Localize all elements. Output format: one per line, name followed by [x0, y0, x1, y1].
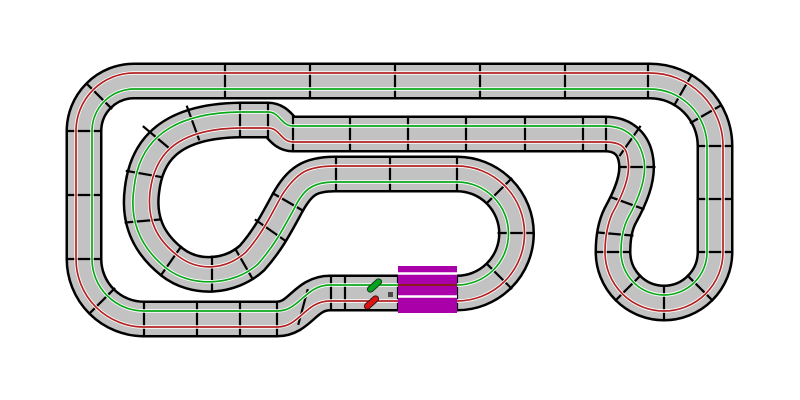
track-canvas [0, 0, 800, 400]
track-layout-svg[interactable] [0, 0, 800, 400]
lap-sensor-dot [388, 292, 393, 297]
start-finish-section[interactable] [398, 266, 457, 313]
